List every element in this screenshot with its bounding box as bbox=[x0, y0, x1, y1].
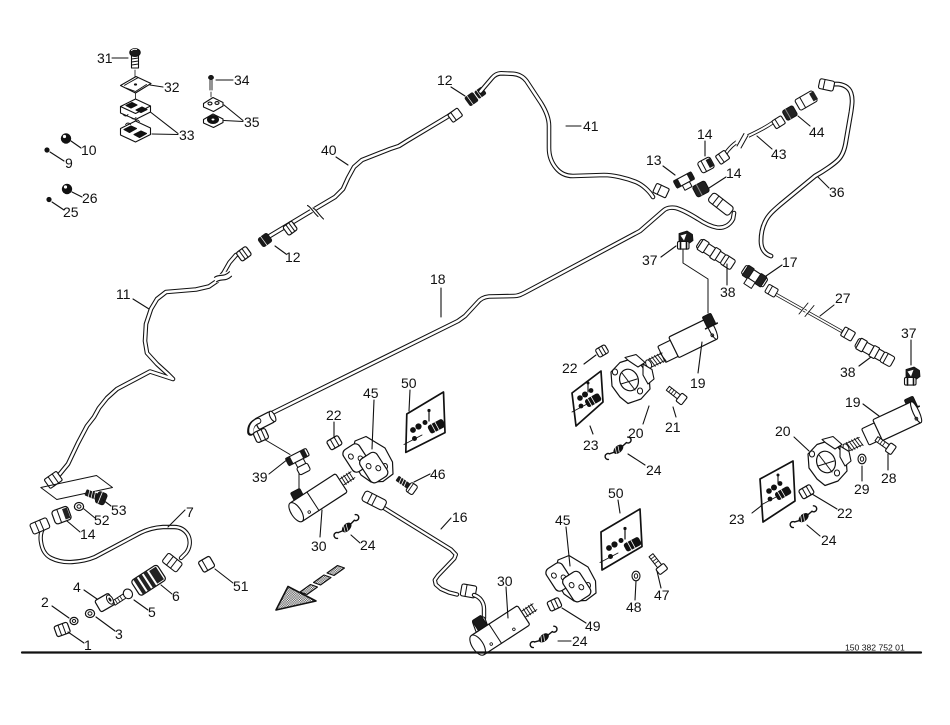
svg-text:24: 24 bbox=[360, 537, 376, 553]
svg-text:24: 24 bbox=[572, 633, 588, 649]
svg-text:25: 25 bbox=[63, 204, 79, 220]
svg-text:49: 49 bbox=[585, 618, 601, 634]
svg-text:23: 23 bbox=[729, 511, 745, 527]
svg-text:10: 10 bbox=[81, 142, 97, 158]
svg-text:32: 32 bbox=[164, 79, 180, 95]
svg-text:45: 45 bbox=[363, 385, 379, 401]
svg-text:43: 43 bbox=[771, 146, 787, 162]
svg-text:24: 24 bbox=[821, 532, 837, 548]
svg-text:31: 31 bbox=[97, 50, 113, 66]
svg-text:24: 24 bbox=[646, 462, 662, 478]
svg-text:35: 35 bbox=[244, 114, 260, 130]
svg-text:12: 12 bbox=[285, 249, 301, 265]
svg-text:30: 30 bbox=[497, 573, 513, 589]
svg-text:50: 50 bbox=[401, 375, 417, 391]
svg-text:150 382 752 01: 150 382 752 01 bbox=[845, 643, 905, 653]
svg-text:47: 47 bbox=[654, 587, 670, 603]
svg-text:38: 38 bbox=[840, 364, 856, 380]
svg-text:27: 27 bbox=[835, 290, 851, 306]
svg-text:7: 7 bbox=[186, 504, 194, 520]
svg-text:19: 19 bbox=[690, 375, 706, 391]
svg-text:1: 1 bbox=[84, 637, 92, 653]
svg-text:39: 39 bbox=[252, 469, 268, 485]
svg-text:2: 2 bbox=[41, 594, 49, 610]
svg-text:37: 37 bbox=[642, 252, 658, 268]
svg-text:12: 12 bbox=[437, 72, 453, 88]
svg-text:5: 5 bbox=[148, 604, 156, 620]
svg-text:36: 36 bbox=[829, 184, 845, 200]
svg-text:22: 22 bbox=[562, 360, 578, 376]
svg-text:29: 29 bbox=[854, 481, 870, 497]
svg-text:33: 33 bbox=[179, 127, 195, 143]
svg-text:30: 30 bbox=[311, 538, 327, 554]
svg-text:51: 51 bbox=[233, 578, 249, 594]
svg-text:14: 14 bbox=[80, 526, 96, 542]
svg-text:21: 21 bbox=[665, 419, 681, 435]
svg-text:23: 23 bbox=[583, 437, 599, 453]
svg-text:9: 9 bbox=[65, 155, 73, 171]
svg-text:16: 16 bbox=[452, 509, 468, 525]
svg-text:3: 3 bbox=[115, 626, 123, 642]
svg-text:38: 38 bbox=[720, 284, 736, 300]
svg-text:40: 40 bbox=[321, 142, 337, 158]
svg-text:45: 45 bbox=[555, 512, 571, 528]
svg-text:48: 48 bbox=[626, 599, 642, 615]
svg-text:46: 46 bbox=[430, 466, 446, 482]
svg-text:22: 22 bbox=[837, 505, 853, 521]
svg-text:14: 14 bbox=[726, 165, 742, 181]
svg-text:52: 52 bbox=[94, 512, 110, 528]
svg-text:18: 18 bbox=[430, 271, 446, 287]
svg-text:41: 41 bbox=[583, 118, 599, 134]
svg-text:44: 44 bbox=[809, 124, 825, 140]
svg-text:14: 14 bbox=[697, 126, 713, 142]
svg-text:53: 53 bbox=[111, 502, 127, 518]
svg-text:50: 50 bbox=[608, 485, 624, 501]
svg-text:4: 4 bbox=[73, 579, 81, 595]
svg-text:26: 26 bbox=[82, 190, 98, 206]
svg-text:13: 13 bbox=[646, 152, 662, 168]
svg-text:6: 6 bbox=[172, 588, 180, 604]
svg-text:34: 34 bbox=[234, 72, 250, 88]
svg-text:19: 19 bbox=[845, 394, 861, 410]
svg-text:22: 22 bbox=[326, 407, 342, 423]
svg-text:37: 37 bbox=[901, 325, 917, 341]
svg-text:20: 20 bbox=[775, 423, 791, 439]
svg-text:17: 17 bbox=[782, 254, 798, 270]
svg-text:11: 11 bbox=[116, 286, 131, 302]
svg-text:28: 28 bbox=[881, 470, 897, 486]
